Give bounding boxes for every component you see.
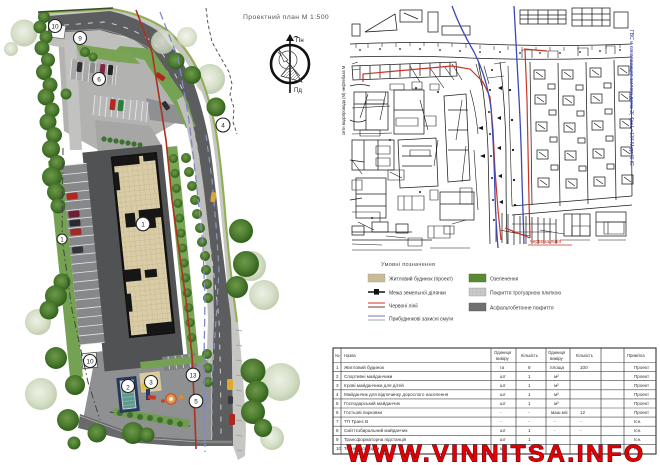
svg-text:шт: шт <box>500 401 507 406</box>
svg-text:9: 9 <box>78 36 82 43</box>
svg-text:10: 10 <box>336 446 342 451</box>
svg-text:Межа земельної ділянки: Межа земельної ділянки <box>389 291 446 297</box>
svg-text:7: 7 <box>336 419 339 424</box>
svg-text:шт: шт <box>500 428 507 433</box>
svg-text:м²: м² <box>554 383 559 388</box>
svg-text:Проект: Проект <box>634 365 650 370</box>
svg-text:1: 1 <box>336 365 339 370</box>
svg-text:3: 3 <box>336 383 339 388</box>
svg-text:Проект: Проект <box>634 410 650 415</box>
svg-text:12: 12 <box>580 410 586 415</box>
svg-text:8: 8 <box>528 365 531 370</box>
svg-text:9: 9 <box>336 437 339 442</box>
svg-text:виміру: виміру <box>550 356 564 361</box>
svg-text:1: 1 <box>528 383 531 388</box>
svg-text:ТП Транс В: ТП Транс В <box>344 419 368 424</box>
svg-text:1: 1 <box>528 374 531 379</box>
svg-text:Житловий будинок: Житловий будинок <box>344 364 385 370</box>
svg-text:Спортивні майданчики: Спортивні майданчики <box>344 373 393 379</box>
svg-text:№: № <box>335 353 340 358</box>
svg-text:6: 6 <box>336 410 339 415</box>
svg-text:2: 2 <box>336 374 339 379</box>
svg-text:Сміттєзбиральний майданчик: Сміттєзбиральний майданчик <box>344 427 408 433</box>
svg-text:Пн: Пн <box>296 38 304 44</box>
svg-text:5: 5 <box>194 398 198 405</box>
svg-text:маш.міс: маш.міс <box>551 410 569 415</box>
svg-text:га: га <box>500 365 505 370</box>
svg-text:шт: шт <box>500 374 507 379</box>
svg-text:1: 1 <box>528 392 531 397</box>
svg-text:Проект: Проект <box>634 383 650 388</box>
svg-text:1: 1 <box>141 221 145 228</box>
svg-text:Проектний план М 1:500: Проектний план М 1:500 <box>243 13 329 21</box>
svg-text:шт: шт <box>500 383 507 388</box>
svg-text:1: 1 <box>528 401 531 406</box>
svg-text:Покриття тротуарною плиткою: Покриття тротуарною плиткою <box>490 291 561 297</box>
svg-text:6: 6 <box>97 77 101 84</box>
svg-text:м²: м² <box>554 374 559 379</box>
svg-text:Одиниця: Одиниця <box>548 350 565 355</box>
svg-text:2: 2 <box>126 384 130 391</box>
svg-text:червона лінія: червона лінія <box>530 239 561 245</box>
svg-text:Одиниця: Одиниця <box>494 350 511 355</box>
svg-text:13: 13 <box>190 372 197 379</box>
svg-text:Існ.: Існ. <box>634 428 641 433</box>
svg-text:Прибудинкові захисні смуги: Прибудинкові захисні смуги <box>389 317 453 323</box>
svg-text:виміру: виміру <box>496 356 510 361</box>
svg-text:м²: м² <box>554 401 559 406</box>
svg-text:Примітка: Примітка <box>627 353 645 358</box>
svg-text:3: 3 <box>149 379 153 386</box>
svg-text:Житловий будинок (проект): Житловий будинок (проект) <box>389 276 453 283</box>
svg-text:Червоні лінії: Червоні лінії <box>389 304 418 310</box>
svg-text:4: 4 <box>221 123 225 130</box>
svg-text:10: 10 <box>86 359 94 366</box>
svg-text:100: 100 <box>580 365 588 370</box>
svg-text:Кількість: Кількість <box>521 353 539 358</box>
svg-text:Ігрові майданчики для дітей: Ігрові майданчики для дітей <box>344 382 404 388</box>
svg-text:Проект: Проект <box>634 401 650 406</box>
svg-text:м²: м² <box>554 392 559 397</box>
svg-text:8: 8 <box>336 428 339 433</box>
svg-text:Гостьові парковки: Гостьові парковки <box>344 410 382 415</box>
svg-text:Майданчик для відпочинку дорос: Майданчик для відпочинку дорослого насел… <box>344 391 449 397</box>
svg-text:Пд: Пд <box>294 88 302 94</box>
svg-text:4: 4 <box>336 392 339 397</box>
svg-text:WWW.VINNITSA.INFO: WWW.VINNITSA.INFO <box>347 441 646 465</box>
svg-text:Господарський майданчик: Господарський майданчик <box>344 400 401 406</box>
svg-text:Асфальтобетонне покриття: Асфальтобетонне покриття <box>490 306 554 312</box>
svg-text:Умовні позначення: Умовні позначення <box>381 262 435 268</box>
svg-text:5: 5 <box>336 401 339 406</box>
svg-text:10: 10 <box>51 24 59 31</box>
svg-text:шт: шт <box>500 392 507 397</box>
svg-text:1: 1 <box>528 428 531 433</box>
svg-text:площа: площа <box>550 365 565 370</box>
svg-text:Назва: Назва <box>344 353 356 358</box>
svg-text:Озеленення: Озеленення <box>490 277 519 283</box>
svg-text:Існ.: Існ. <box>634 419 641 424</box>
svg-text:ГВС и канализация жилого дома: ГВС и канализация жилого дома 2(-4)м L=1… <box>628 30 634 166</box>
svg-text:сети водопровода (М) нефтебаза: сети водопровода (М) нефтебаза М <box>341 65 346 135</box>
svg-text:Проект: Проект <box>634 392 650 397</box>
svg-text:Проект: Проект <box>634 374 650 379</box>
svg-text:Кількість: Кількість <box>576 353 594 358</box>
